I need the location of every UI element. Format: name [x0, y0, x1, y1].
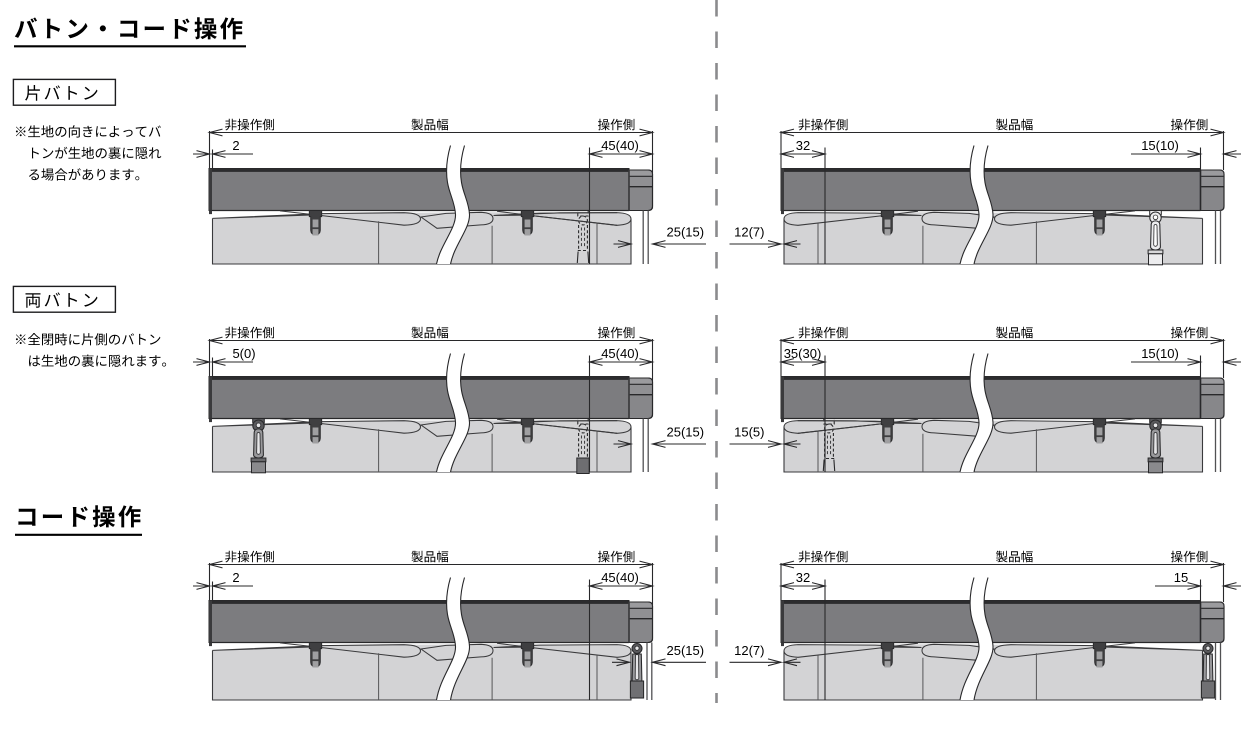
svg-text:25(15): 25(15) — [667, 643, 705, 658]
svg-text:2: 2 — [232, 138, 239, 153]
svg-text:32: 32 — [796, 138, 810, 153]
svg-text:15(5): 15(5) — [734, 425, 764, 440]
svg-text:25(15): 25(15) — [667, 425, 705, 440]
svg-text:12(7): 12(7) — [734, 225, 764, 240]
svg-text:45(40): 45(40) — [601, 570, 639, 585]
svg-text:35(30): 35(30) — [784, 346, 822, 361]
svg-text:32: 32 — [796, 570, 810, 585]
svg-text:45(40): 45(40) — [601, 138, 639, 153]
svg-text:15(10): 15(10) — [1141, 346, 1179, 361]
svg-text:25(15): 25(15) — [667, 225, 705, 240]
svg-text:2: 2 — [232, 570, 239, 585]
svg-text:15: 15 — [1174, 570, 1188, 585]
svg-text:5(0): 5(0) — [232, 346, 255, 361]
svg-text:45(40): 45(40) — [601, 346, 639, 361]
svg-text:12(7): 12(7) — [734, 643, 764, 658]
svg-text:15(10): 15(10) — [1141, 138, 1179, 153]
